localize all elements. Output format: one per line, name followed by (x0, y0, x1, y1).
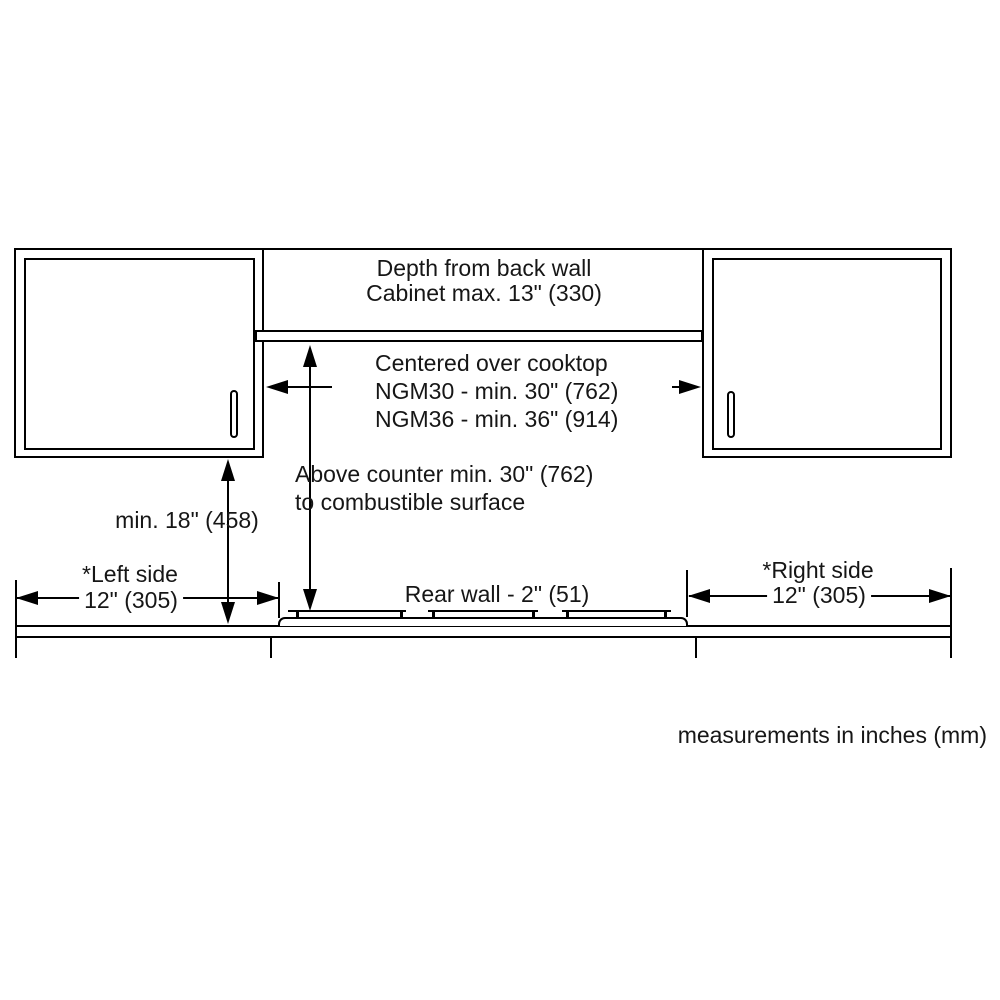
grate-foot-icon (432, 611, 435, 617)
cooktop-base-profile (278, 617, 688, 626)
centered-label-line2: NGM30 - min. 30" (762) (375, 377, 618, 405)
depth-label-line2: Cabinet max. 13" (330) (366, 281, 602, 306)
cooktop-grate-segment-3 (562, 610, 671, 612)
counter-cutout-right-tick (695, 638, 697, 658)
grate-foot-icon (566, 611, 569, 617)
right-side-right-arrowhead-icon (929, 589, 951, 603)
centered-label: Centered over cooktop NGM30 - min. 30" (… (375, 349, 618, 433)
counter-cutout-left-tick (270, 638, 272, 658)
left-side-right-arrowhead-icon (257, 591, 279, 605)
centered-label-line1: Centered over cooktop (375, 349, 618, 377)
units-note: measurements in inches (mm) (678, 723, 987, 748)
counter-front-line (15, 636, 952, 638)
grate-foot-icon (532, 611, 535, 617)
above-counter-label: Above counter min. 30" (762) to combusti… (295, 460, 593, 516)
cooktop-grate-segment-2 (428, 610, 538, 612)
above-counter-up-arrowhead-icon (303, 345, 317, 367)
centered-dim-right-arrowhead-icon (679, 380, 701, 394)
right-side-label-line2: 12" (305) (767, 583, 871, 608)
left-cabinet-handle-icon (230, 390, 238, 438)
grate-foot-icon (664, 611, 667, 617)
min-height-dim-shaft (227, 465, 229, 605)
grate-foot-icon (296, 611, 299, 617)
centered-dim-left-arrowhead-icon (266, 380, 288, 394)
left-side-label-line1: *Left side (82, 562, 178, 587)
right-cabinet-door (712, 258, 942, 450)
depth-label: Depth from back wall Cabinet max. 13" (3… (366, 256, 602, 306)
grate-foot-icon (400, 611, 403, 617)
min-height-label: min. 18" (458) (115, 508, 259, 533)
right-cabinet-handle-icon (727, 391, 735, 438)
installation-diagram: Depth from back wall Cabinet max. 13" (3… (0, 0, 1000, 1000)
right-side-label-line1: *Right side (762, 558, 873, 583)
centered-label-line3: NGM36 - min. 36" (914) (375, 405, 618, 433)
left-cabinet-door (24, 258, 255, 450)
above-counter-down-arrowhead-icon (303, 589, 317, 611)
min-height-down-arrowhead-icon (221, 602, 235, 624)
min-height-up-arrowhead-icon (221, 459, 235, 481)
depth-label-line1: Depth from back wall (366, 256, 602, 281)
left-side-label-line2: 12" (305) (79, 588, 183, 613)
rear-wall-label: Rear wall - 2" (51) (405, 582, 590, 606)
left-side-left-arrowhead-icon (16, 591, 38, 605)
right-side-left-arrowhead-icon (688, 589, 710, 603)
above-counter-label-line1: Above counter min. 30" (762) (295, 460, 593, 488)
counter-right-end-line (950, 568, 952, 658)
above-counter-label-line2: to combustible surface (295, 488, 593, 516)
soffit-bottom-rail (255, 330, 703, 342)
